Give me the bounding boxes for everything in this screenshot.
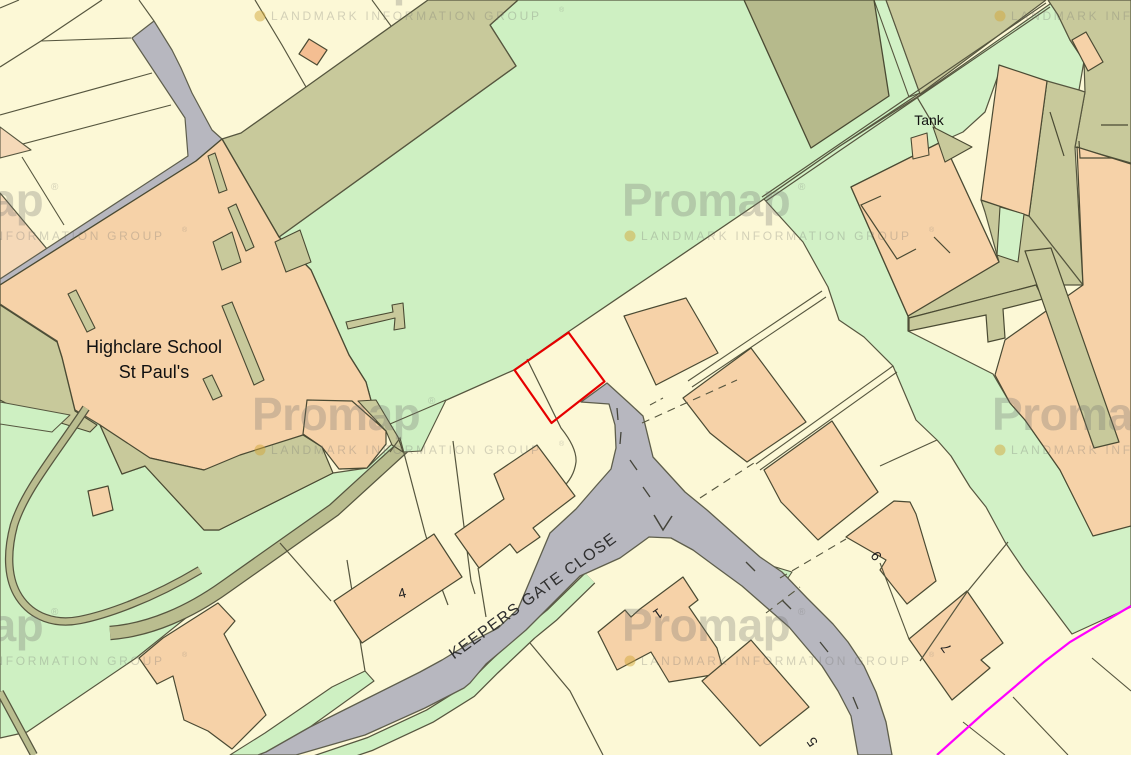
svg-text:Tank: Tank [914,112,945,128]
svg-text:®: ® [51,607,59,618]
svg-text:Promap: Promap [622,174,790,226]
svg-text:®: ® [929,651,935,659]
svg-text:®: ® [559,6,565,14]
svg-text:LANDMARK INFORMATION GROUP: LANDMARK INFORMATION GROUP [271,9,542,23]
svg-text:LANDMARK INFORMATION GROUP: LANDMARK INFORMATION GROUP [271,443,542,457]
svg-text:Promap: Promap [0,174,43,226]
svg-text:®: ® [51,182,59,193]
svg-text:LANDMARK INFORMATION GROUP: LANDMARK INFORMATION GROUP [1011,9,1131,23]
svg-text:®: ® [798,607,806,618]
svg-text:®: ® [929,226,935,234]
svg-text:Promap: Promap [0,599,43,651]
svg-text:®: ® [559,440,565,448]
svg-text:®: ® [182,226,188,234]
svg-text:Promap: Promap [252,0,420,6]
svg-text:LANDMARK INFORMATION GROUP: LANDMARK INFORMATION GROUP [641,229,912,243]
svg-text:®: ® [798,182,806,193]
svg-text:®: ® [428,396,436,407]
svg-text:LANDMARK INFORMATION GROUP: LANDMARK INFORMATION GROUP [0,654,165,668]
svg-text:®: ® [182,651,188,659]
svg-text:LANDMARK INFORMATION GROUP: LANDMARK INFORMATION GROUP [641,654,912,668]
svg-text:Promap: Promap [252,388,420,440]
svg-text:Promap: Promap [992,388,1131,440]
svg-text:Highclare School: Highclare School [86,337,222,357]
svg-text:Promap: Promap [622,599,790,651]
svg-text:LANDMARK INFORMATION GROUP: LANDMARK INFORMATION GROUP [0,229,165,243]
svg-text:LANDMARK INFORMATION GROUP: LANDMARK INFORMATION GROUP [1011,443,1131,457]
svg-text:St Paul's: St Paul's [119,362,189,382]
svg-text:Promap: Promap [992,0,1131,6]
